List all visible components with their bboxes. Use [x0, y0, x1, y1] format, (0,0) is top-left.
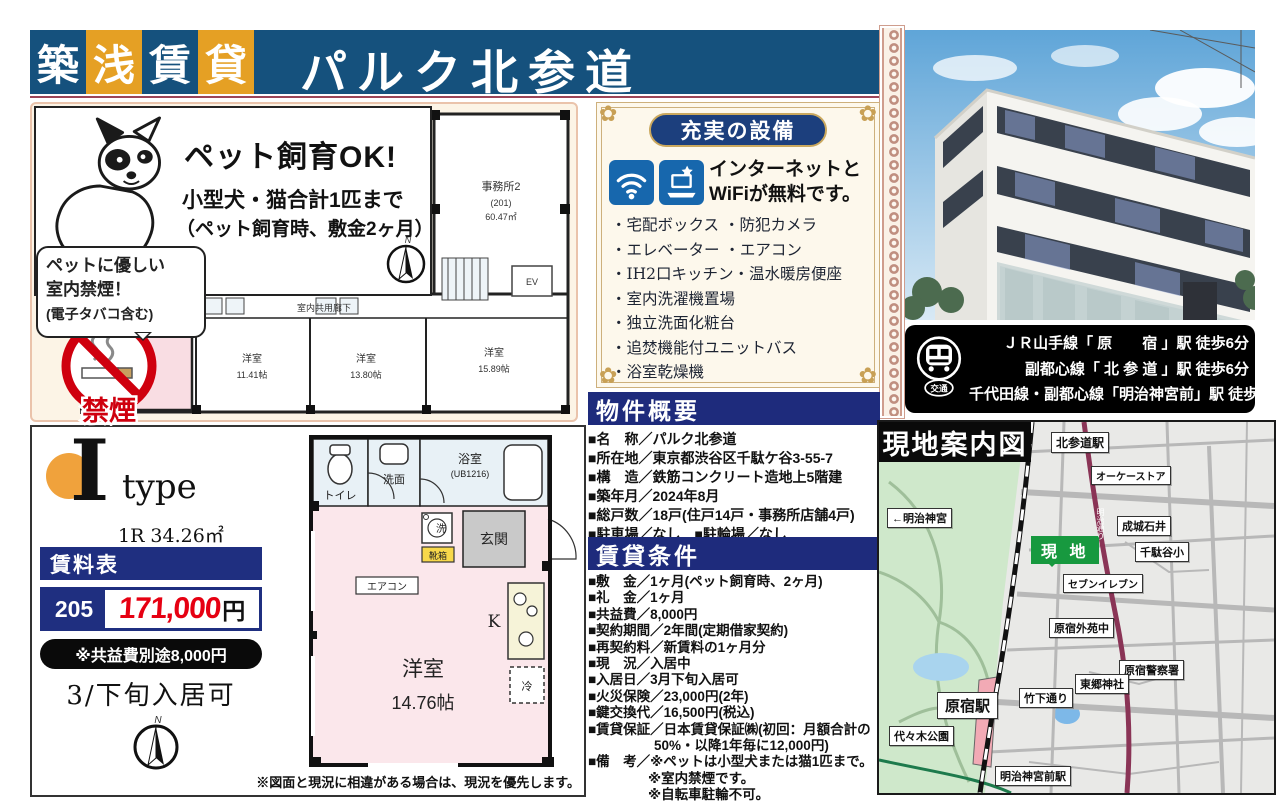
price-yen: 円 — [222, 592, 245, 626]
conditions-line: ■契約期間／2年間(定期借家契約) — [588, 623, 880, 639]
pet-smoking-bubble: ペットに優しい 室内禁煙！ (電子タバコ含む) — [36, 246, 206, 338]
conditions-line: ■火災保険／23,000円(2年) — [588, 689, 880, 705]
conditions-line: ■入居日／3月下旬入居可 — [588, 672, 880, 688]
pet-ok-headline: ペット飼育OK! — [184, 132, 397, 176]
plan-unit-size: 13.80帖 — [350, 369, 382, 380]
map-site-marker: 現 地 — [1031, 536, 1099, 564]
train-icon: 交通 — [913, 333, 965, 403]
overview-line: ■名 称／パルク北参道 — [588, 430, 880, 449]
conditions-line: 50%・以降1年毎に12,000円) — [588, 738, 880, 754]
header-badge-char: 賃 — [142, 30, 198, 94]
plan-unit-name: 洋室 — [356, 352, 376, 365]
equipment-item: ・宅配ボックス ・防犯カメラ — [611, 213, 871, 238]
map-label-gaien-chu: 原宿外苑中 — [1049, 618, 1114, 638]
common-fee-note: ※共益費別途8,000円 — [40, 639, 262, 669]
plan-bath-label: 浴室 — [458, 451, 482, 466]
transport-box: 交通 ＪＲ山手線「 原 宿 」駅 徒歩6分 副都心線「 北 参 道 」駅 徒歩6… — [905, 325, 1255, 413]
plan-disclaimer: ※図面と現況に相違がある場合は、現況を優先します。 — [38, 772, 580, 791]
transport-line: 千代田線・副都心線「明治神宮前」駅 徒歩9分 — [969, 382, 1249, 408]
transport-icon-label: 交通 — [930, 382, 948, 393]
rent-price: 171,000 円 — [105, 590, 259, 628]
header-badge-boxes: 築 浅 賃 貸 — [30, 30, 254, 94]
map-label-harajuku: 原宿駅 — [937, 692, 998, 719]
pond — [913, 653, 969, 681]
flourish-icon: ✿ — [859, 363, 877, 389]
transport-line: 副都心線「 北 参 道 」駅 徒歩6分 — [969, 357, 1249, 383]
equipment-item: ・独立洗面化粧台 — [611, 311, 871, 336]
plan-unit-size: 15.89帖 — [478, 363, 510, 374]
header-underline — [30, 96, 880, 98]
type-letter: I — [70, 421, 109, 520]
overview-lines: ■名 称／パルク北参道 ■所在地／東京都渋谷区千駄ケ谷3-55-7 ■構 造／鉄… — [588, 430, 880, 544]
equipment-item: ・エレベーター ・エアコン — [611, 238, 871, 263]
compass-icon: N — [130, 713, 182, 773]
bubble-line2: 室内禁煙！ — [46, 278, 196, 302]
plan-office-no: (201) — [490, 198, 511, 208]
plan-entrance-label: 玄関 — [480, 531, 508, 547]
wifi-free-line2: WiFiが無料です。 — [709, 182, 861, 207]
plan-ev-label: EV — [526, 277, 538, 287]
flourish-icon: ✿ — [599, 363, 617, 389]
plan-office-name: 事務所2 — [481, 179, 520, 193]
pet-sub1: 小型犬・猫合計1匹まで — [182, 184, 404, 214]
wifi-free-text: インターネットと WiFiが無料です。 — [709, 157, 861, 207]
transport-line: ＪＲ山手線「 原 宿 」駅 徒歩6分 — [969, 331, 1249, 357]
plan-room-size: 14.76帖 — [391, 693, 454, 713]
move-in-date: 3/下旬入居可 — [32, 675, 270, 712]
compass-n: N — [405, 235, 412, 245]
equipment-list: ・宅配ボックス ・防犯カメラ ・エレベーター ・エアコン ・IH2口キッチン・温… — [611, 213, 871, 385]
conditions-line: ■敷 金／1ヶ月(ペット飼育時、2ヶ月) — [588, 574, 880, 590]
map-title: 現地案内図 — [879, 422, 1031, 462]
header-badge-char: 貸 — [198, 30, 254, 94]
map-label-kitasando: 北参道駅 — [1051, 432, 1109, 453]
map-label-seijo-ishii: 成城石井 — [1117, 516, 1171, 536]
plan-unit-name: 洋室 — [242, 352, 262, 365]
map-label-meiji-jingumae: 明治神宮前駅 — [995, 766, 1071, 786]
price-amount: 171,000 — [118, 592, 222, 626]
equipment-panel: ✿ ✿ ✿ ✿ 充実の設備 インターネットと — [596, 102, 880, 388]
header-badge-char: 浅 — [86, 30, 142, 94]
area-map: 現地案内図 北参道駅 オーケーストア ←明治神宮 成城石井 千駄谷小 現 地 セ… — [877, 420, 1276, 795]
wifi-free-line1: インターネットと — [709, 157, 861, 182]
conditions-line: ※室内禁煙です。 — [588, 771, 880, 787]
compass-icon: N — [384, 234, 428, 286]
header-badge-char: 築 — [30, 30, 86, 94]
equipment-item: ・室内洗濯機置場 — [611, 287, 871, 312]
conditions-section: 賃貸条件 ■敷 金／1ヶ月(ペット飼育時、2ヶ月) ■礼 金／1ヶ月 ■共益費／… — [588, 537, 880, 801]
map-label-meiji-jingu: ←明治神宮 — [887, 508, 952, 528]
conditions-line: ■再契約料／新賃料の1ヶ月分 — [588, 640, 880, 656]
equipment-item: ・追焚機能付ユニットバス — [611, 336, 871, 361]
conditions-title: 賃貸条件 — [588, 537, 880, 570]
plan-bath-ub-label: (UB1216) — [451, 469, 490, 479]
flyer-page: 築 浅 賃 貸 パルク北参道 — [0, 0, 1280, 801]
plan-corridor-label: 室内共用廊下 — [297, 302, 351, 313]
plan-washer-label: 洗 — [436, 523, 446, 535]
conditions-line: ■共益費／8,000円 — [588, 607, 880, 623]
plan-unit-name: 洋室 — [484, 346, 504, 359]
conditions-line: ■現 況／入居中 — [588, 656, 880, 672]
transport-lines: ＪＲ山手線「 原 宿 」駅 徒歩6分 副都心線「 北 参 道 」駅 徒歩6分 千… — [969, 331, 1249, 408]
plan-toilet-label: トイレ — [324, 490, 357, 502]
laptop-internet-icon — [659, 160, 704, 205]
equipment-item: ・浴室乾燥機 — [611, 360, 871, 385]
plan-ac-label: エアコン — [367, 582, 407, 593]
map-label-ok-store: オーケーストア — [1091, 466, 1171, 485]
wifi-icon — [609, 160, 654, 205]
bubble-line1: ペットに優しい — [46, 254, 196, 278]
rent-table-title: 賃料表 — [40, 547, 262, 580]
pet-panel: 事務所2 (201) 60.47㎡ 室内共用廊下 EV 洋室 14.76帖 洋室… — [30, 102, 578, 422]
unit-floor-plan: トイレ 洗面 浴室 (UB1216) 玄関 洗 靴箱 エアコン K 冷 洋室 1… — [298, 431, 582, 775]
plan-wash-label: 洗面 — [383, 473, 405, 486]
rope-ornament — [882, 28, 902, 416]
property-title: パルク北参道 — [300, 34, 642, 103]
rent-price-row: 205 171,000 円 — [40, 587, 262, 631]
conditions-line: ■鍵交換代／16,500円(税込) — [588, 705, 880, 721]
plan-office-area: 60.47㎡ — [485, 212, 517, 222]
plan-kitchen-label: K — [488, 612, 501, 632]
conditions-line: ※自転車駐輪不可。 — [588, 787, 880, 801]
wifi-free-row: インターネットと WiFiが無料です。 — [609, 157, 861, 207]
equipment-badge: 充実の設備 — [649, 113, 827, 147]
overview-title: 物件概要 — [588, 392, 880, 425]
equipment-item: ・IH2口キッチン・温水暖房便座 — [611, 262, 871, 287]
conditions-line: ■礼 金／1ヶ月 — [588, 590, 880, 606]
plan-shoe-label: 靴箱 — [429, 550, 447, 561]
plan-room-label: 洋室 — [402, 658, 444, 681]
overview-line: ■構 造／鉄筋コンクリート造地上5階建 — [588, 468, 880, 487]
type-word: type — [122, 467, 197, 507]
conditions-lines: ■敷 金／1ヶ月(ペット飼育時、2ヶ月) ■礼 金／1ヶ月 ■共益費／8,000… — [588, 574, 880, 801]
no-smoking-label: 禁煙 — [82, 396, 136, 426]
plan-unit-size: 11.41帖 — [237, 369, 268, 380]
unit-panel: I type 1R 34.26㎡ 賃料表 205 171,000 円 ※共益費別… — [30, 425, 586, 797]
map-label-sendagaya-sho: 千駄谷小 — [1135, 542, 1189, 562]
unit-spec: 1R 34.26㎡ — [118, 521, 224, 548]
flourish-icon: ✿ — [599, 101, 617, 127]
flourish-icon: ✿ — [859, 101, 877, 127]
map-label-yoyogi-park: 代々木公園 — [889, 726, 954, 746]
overview-line: ■総戸数／18戸(住戸14戸・事務所店舗4戸) — [588, 506, 880, 525]
plan-fridge-label: 冷 — [522, 680, 533, 693]
building-photo — [905, 30, 1255, 320]
room-number: 205 — [43, 590, 105, 628]
compass-n: N — [154, 715, 162, 726]
overview-section: 物件概要 ■名 称／パルク北参道 ■所在地／東京都渋谷区千駄ケ谷3-55-7 ■… — [588, 392, 880, 544]
overview-line: ■所在地／東京都渋谷区千駄ケ谷3-55-7 — [588, 449, 880, 468]
bubble-line3: (電子タバコ含む) — [46, 302, 196, 326]
map-label-meiji-dori: 明治通り — [1095, 508, 1106, 540]
map-label-togo-jinja: 東郷神社 — [1075, 674, 1129, 694]
conditions-line: ■備 考／※ペットは小型犬または猫1匹まで。 — [588, 754, 880, 770]
map-label-takeshita: 竹下通り — [1019, 688, 1073, 708]
overview-line: ■築年月／2024年8月 — [588, 487, 880, 506]
conditions-line: ■賃貸保証／日本賃貸保証㈱(初回：月額合計の — [588, 722, 880, 738]
map-label-seven-eleven: セブンイレブン — [1063, 574, 1143, 593]
